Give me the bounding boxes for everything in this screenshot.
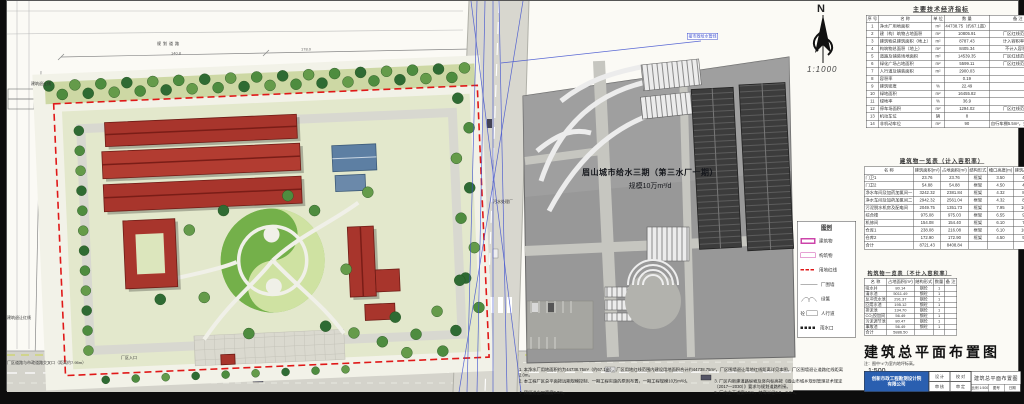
legend-item-label: 雨水口 (820, 325, 834, 332)
table-cell: 机动车位 (878, 113, 932, 121)
table-row: 4构筑物总面积（地上）m²8405.34不计入容积率 (866, 45, 1024, 53)
table-cell: 90 (944, 120, 990, 128)
table-cell: 构筑物总面积（地上） (878, 45, 932, 53)
planned-road-top-label: 规划道路 (157, 41, 181, 47)
table-cell: 3242.32 (914, 189, 941, 197)
table-cell: 厂区红线范围内 (990, 60, 1024, 68)
table-row: 5道路及铺装场地面积m²14539.35厂区红线范围内 (866, 53, 1024, 61)
project-scale: 规模10万m³/d (555, 181, 745, 191)
table-cell: 容积率 (878, 75, 932, 83)
table-cell: 合计 (864, 330, 887, 336)
column-header: 数量 (934, 278, 945, 286)
setback-redline-label: 建筑退让红线 (7, 315, 31, 321)
table-cell: 8 (944, 113, 990, 121)
legend-item: 建筑物 (801, 234, 853, 249)
table-cell: 3 (866, 38, 878, 46)
table-cell: 仓库2 (864, 234, 913, 242)
legend-title: 图例 (801, 224, 853, 232)
table-cell: 54.88 (941, 182, 968, 190)
table-row: 14非机动车位m²90自行车棚5.5m²，共14个车位 (866, 120, 1024, 128)
table-cell: 绿化广场占地面积 (878, 60, 932, 68)
note-1: 1. 本净水厂用地面积约为44738.75m²（约67.1亩），厂区用地红线范围… (519, 367, 849, 378)
table-row: 1净水厂用地面积m²44738.75（约67.1亩） (866, 23, 1024, 31)
column-header: 名 称 (864, 278, 887, 286)
no-cell: 图号 (989, 385, 1005, 392)
table-cell: 框架 (968, 197, 988, 205)
notes-wrap: 1. 本净水厂用地面积约为44738.75m²（约67.1亩），厂区用地红线范围… (519, 367, 849, 396)
table-cell: 10 (866, 90, 878, 98)
table-cell (914, 330, 934, 336)
table-cell: 1351.73 (941, 204, 968, 212)
table-cell: 2049.75 (914, 204, 941, 212)
table-row: 污泥脱水机房及配电间2049.751351.73框架7.9510.101 (864, 204, 1024, 212)
table-cell (988, 242, 1014, 250)
table-cell: 172.90 (914, 234, 941, 242)
table-cell: 机修间 (864, 219, 913, 227)
table-cell: 8.29 (1013, 189, 1024, 197)
note-3: 3. 厂区内新建道路纵坡及竖向标高按《眉山市城乡规划管理技术规定（2017—20… (714, 378, 853, 389)
screenshot-root: { "project_label": { "line1": "眉山城市给水三期（… (0, 0, 1024, 404)
table-row: 2建（构）筑物占地面积m²10805.91厂区红线范围内 (866, 30, 1024, 38)
table-cell: 23.76 (941, 174, 968, 182)
table-cell: 6.10 (988, 227, 1014, 235)
hedge-symbol (801, 295, 818, 302)
structures-table: 名 称占地面积(m²)结构形式数量备 注吸水井80.14钢砼1清水池5011.4… (864, 278, 955, 336)
table-cell: 154.08 (914, 219, 941, 227)
table-row: 8容积率0.19 (866, 75, 1024, 83)
table-cell: 计入容积率部分 (990, 38, 1024, 46)
table-cell: 净水车间及加药加氯间一 (864, 189, 913, 197)
table-row: 机修间154.08154.40框架6.107.761 (864, 219, 1024, 227)
table-cell: 4.50 (988, 234, 1014, 242)
table-row: 合计5886.50 (864, 330, 956, 336)
column-header: 备 注 (945, 278, 957, 286)
project-name: 眉山城市给水三期（第三水厂一期） (555, 167, 745, 178)
drawing-title-note: 注：图中“±”为室内地坪标高。 (864, 361, 917, 367)
legend-item: 构筑物 (801, 248, 853, 263)
table-cell: 154.40 (941, 219, 968, 227)
note-5: 5. 厂内主干道宽4.5m，转弯半径6.0—9.0m。 (714, 390, 853, 396)
rain-inlet-symbol (801, 327, 817, 330)
legend-item-label: 构筑物 (819, 252, 833, 259)
table-cell: 23.76 (914, 174, 941, 182)
company-name: 创新市政工程勘测设计院有限公司 (865, 372, 929, 392)
table-cell: 污泥脱水机房及配电间 (864, 204, 913, 212)
structure-symbol (801, 253, 816, 259)
review-label: 审 核 (929, 382, 950, 392)
table-cell: 6.10 (988, 219, 1014, 227)
table-cell: 238.08 (914, 227, 941, 235)
table-cell: 5 (866, 53, 878, 61)
sewage-plant-label: 污水处理厂 (493, 199, 513, 205)
legend: 图例 建筑物构筑物用地红线厂围墙绿篱砼人行道雨水口 (797, 221, 856, 338)
table-cell: 1 (866, 23, 878, 31)
table-cell: 4.32 (988, 189, 1014, 197)
column-header: 结构形式 (968, 167, 988, 175)
table-cell: 22.49 (944, 83, 990, 91)
table-cell: m² (932, 23, 944, 31)
table-cell: 框架 (968, 234, 988, 242)
titleblock-drawing-name: 建筑总平面布置图 (972, 372, 1021, 385)
north-arrow-icon (814, 15, 832, 63)
table-row: 仓库2172.90172.90框架4.509.461 (864, 234, 1024, 242)
table-cell: 1294.02 (944, 105, 990, 113)
table-cell: 8 (866, 75, 878, 83)
table-cell: 6 (866, 60, 878, 68)
building-symbol (801, 238, 816, 244)
table-cell: 框架 (968, 204, 988, 212)
column-header: 单 位 (932, 15, 944, 23)
table-row: 仓库1238.08216.08框架6.1010.761 (864, 227, 1024, 235)
table-cell: 975.03 (941, 212, 968, 220)
column-header: 序 号 (866, 15, 878, 23)
setback-line-label: 建筑退让线 (31, 81, 51, 87)
table-cell: 建筑物总建筑面积（地上） (878, 38, 932, 46)
column-header: 名 称 (864, 167, 913, 175)
table-cell: 8721.43 (914, 242, 941, 250)
table-cell: 厂区红线范围内 (990, 53, 1024, 61)
table-cell: 8405.34 (944, 45, 990, 53)
scale-cell: 比例 1:500 (972, 385, 989, 392)
table-cell (990, 113, 1024, 121)
table-cell: 3.50 (988, 174, 1014, 182)
table-cell: 自行车棚5.5m²，共14个车位 (990, 120, 1024, 128)
legend-item-label: 厂围墙 (821, 281, 835, 288)
project-label: 眉山城市给水三期（第三水厂一期） 规模10万m³/d (555, 167, 745, 191)
table-cell (945, 330, 957, 336)
table-cell: 绿地面积 (878, 90, 932, 98)
table-row: 门卫123.7623.76框架3.504.951 (864, 174, 1024, 182)
table-cell: 44738.75（约67.1亩） (944, 23, 990, 31)
table-cell: 2900.03 (944, 68, 990, 76)
table-cell: CO₂投加间 (864, 313, 887, 319)
table-cell: % (932, 98, 944, 106)
table-cell: 5599.11 (944, 60, 990, 68)
table-cell: 4.32 (988, 197, 1014, 205)
table-cell: m² (932, 38, 944, 46)
table-cell: m² (932, 105, 944, 113)
table-cell: 停车场面积 (878, 105, 932, 113)
table-cell: 8.29 (1013, 197, 1024, 205)
table-cell (990, 75, 1024, 83)
column-header: 结构形式 (914, 278, 934, 286)
table-cell: 净水车间及加药加氯间二 (864, 197, 913, 205)
pipeline-label: 接市政给水管线 (687, 33, 718, 40)
table-row: 12停车场面积m²1294.02厂区红线范围内 (866, 105, 1024, 113)
buildings-table-wrap: 建筑物一览表（计入容积率） 名 称建筑面积(m²)占地面积(m²)结构形式檐口高… (864, 157, 1020, 250)
table-row: 门卫254.8854.88框架4.504.821 (864, 182, 1024, 190)
table-cell: 非机动车位 (878, 120, 932, 128)
table-cell: 仓库1 (864, 227, 913, 235)
table-cell: 11 (866, 98, 878, 106)
indicators-table-title: 主要技术经济指标 (866, 5, 1016, 14)
date-cell: 日期 (1005, 385, 1021, 392)
legend-item-label: 人行道 (821, 310, 835, 317)
dimension-label-1: 140.8 (171, 51, 181, 56)
table-cell: 7.95 (988, 204, 1014, 212)
table-cell: m² (932, 90, 944, 98)
table-row: 净水车间及加药加氯间一3242.322381.84框架4.328.291 (864, 189, 1024, 197)
table-row: 3建筑物总建筑面积（地上）m²8787.43计入容积率部分 (866, 38, 1024, 46)
pavement-symbol: 砼 (801, 310, 818, 317)
table-cell (990, 68, 1024, 76)
table-cell (990, 83, 1024, 91)
table-cell: 0.19 (944, 75, 990, 83)
site-plan-grey (523, 57, 795, 363)
legend-wrap: 图例 建筑物构筑物用地红线厂围墙绿篱砼人行道雨水口 (797, 221, 856, 338)
table-cell: 9 (866, 83, 878, 91)
table-cell: 6.55 (988, 212, 1014, 220)
table-cell: 人行道及铺装面积 (878, 68, 932, 76)
legend-item: 雨水口 (801, 321, 853, 336)
table-cell: 7 (866, 68, 878, 76)
table-row: 7人行道及铺装面积m²2900.03 (866, 68, 1024, 76)
table-row: 9建筑密度%22.49 (866, 83, 1024, 91)
table-cell: 合计 (864, 242, 913, 250)
table-cell: 框架 (968, 189, 988, 197)
grey-parking (527, 301, 593, 349)
table-cell: 54.88 (914, 182, 941, 190)
table-row: 合计8721.438408.84 (864, 242, 1024, 250)
table-cell: 污泥调节池 (864, 319, 887, 325)
table-cell (934, 330, 945, 336)
table-cell: % (932, 83, 944, 91)
table-cell: 10.10 (1013, 204, 1024, 212)
table-cell: 216.08 (941, 227, 968, 235)
legend-item: 用地红线 (801, 263, 853, 278)
crossing-note-label: 厂区道路与市政道路交叉口（距离约7.95m） (7, 360, 86, 366)
design-label: 设 计 (929, 372, 950, 382)
table-cell: 14539.35 (944, 53, 990, 61)
structures-table-title: 构筑物一览表（不计入容积率） (864, 269, 955, 277)
table-cell: 172.90 (941, 234, 968, 242)
buildings-table: 名 称建筑面积(m²)占地面积(m²)结构形式檐口高度(m)建筑高度(m)数量备… (864, 167, 1020, 250)
table-cell: 14 (866, 120, 878, 128)
dimension-label-2: 178.0 (301, 47, 311, 52)
table-cell: 36.9 (944, 98, 990, 106)
table-cell: 10805.91 (944, 30, 990, 38)
table-cell: 2381.84 (941, 189, 968, 197)
wall-symbol (801, 284, 818, 285)
legend-item: 砼人行道 (801, 306, 853, 321)
table-row: 10绿地面积m²16455.82 (866, 90, 1024, 98)
table-cell (968, 242, 988, 250)
table-cell: 16455.82 (944, 90, 990, 98)
table-cell: 道路及铺装场地面积 (878, 53, 932, 61)
legend-item-label: 用地红线 (819, 267, 837, 274)
column-header: 建筑高度(m) (1013, 167, 1024, 175)
table-cell: 框架 (968, 219, 988, 227)
table-cell: m² (932, 45, 944, 53)
table-cell: 厂区红线范围内 (990, 105, 1024, 113)
table-cell: 975.08 (914, 212, 941, 220)
table-row: 13机动车位辆8 (866, 113, 1024, 121)
table-cell: 绿地率 (878, 98, 932, 106)
table-cell: 不计入容积率 (990, 45, 1024, 53)
check-label: 校 对 (950, 372, 971, 382)
title-block-wrap: 创新市政工程勘测设计院有限公司 设 计 校 对 审 核 审 定 建筑总平面布置图… (864, 371, 1021, 392)
column-header: 占地面积(m²) (941, 167, 968, 175)
table-cell: 4.95 (1013, 174, 1024, 182)
note-2: 2. 本工程厂区总平面按远期规模控制、一期工程实施的原则布置，一期工程规模10万… (519, 378, 710, 389)
column-header: 备 注 (990, 15, 1024, 23)
table-cell: 9.40 (1013, 212, 1024, 220)
signature-grid: 设 计 校 对 审 核 审 定 (929, 372, 972, 392)
table-cell: 2561.04 (941, 197, 968, 205)
table-row: 综合楼975.08975.03框架6.559.401 (864, 212, 1024, 220)
approve-label: 审 定 (950, 382, 971, 392)
legend-item: 绿篱 (801, 292, 853, 307)
table-cell: 4 (866, 45, 878, 53)
note-4: 4. 预留进出口宽度9.0m。 (519, 390, 710, 396)
table-cell: 综合楼 (864, 212, 913, 220)
table-cell: 净水厂用地面积 (878, 23, 932, 31)
structures-table-wrap: 构筑物一览表（不计入容积率） 名 称占地面积(m²)结构形式数量备 注吸水井80… (864, 269, 955, 336)
table-cell: 13 (866, 113, 878, 121)
table-cell: 门卫1 (864, 174, 913, 182)
table-cell: 4.82 (1013, 182, 1024, 190)
table-cell (990, 90, 1024, 98)
table-row: 净水车间及加药加氯间二2942.322561.04框架4.328.291 (864, 197, 1024, 205)
table-cell (990, 23, 1024, 31)
table-cell: m² (932, 30, 944, 38)
table-cell: 门卫2 (864, 182, 913, 190)
table-cell: 框架 (968, 212, 988, 220)
table-cell: 建筑密度 (878, 83, 932, 91)
table-cell: m² (932, 60, 944, 68)
legend-item-label: 建筑物 (819, 238, 833, 245)
legend-item-label: 绿篱 (821, 296, 830, 303)
table-cell: 建（构）筑物占地面积 (878, 30, 932, 38)
table-cell: 4.50 (988, 182, 1014, 190)
table-cell: 2942.32 (914, 197, 941, 205)
column-header: 建筑面积(m²) (914, 167, 941, 175)
indicators-table: 序 号名 称单 位数 量备 注1净水厂用地面积m²44738.75（约67.1亩… (866, 15, 1016, 128)
table-cell (1013, 242, 1024, 250)
table-cell: 辆 (932, 113, 944, 121)
table-cell: 10.76 (1013, 227, 1024, 235)
buildings-table-title: 建筑物一览表（计入容积率） (864, 157, 1020, 165)
site-plan-colored (32, 55, 493, 390)
title-block: 创新市政工程勘测设计院有限公司 设 计 校 对 审 核 审 定 建筑总平面布置图… (864, 371, 1021, 392)
north-letter: N (817, 3, 825, 15)
column-header: 数 量 (944, 15, 990, 23)
column-header: 檐口高度(m) (988, 167, 1014, 175)
table-cell: 7.76 (1013, 219, 1024, 227)
indicators-table-wrap: 主要技术经济指标 序 号名 称单 位数 量备 注1净水厂用地面积m²44738.… (866, 5, 1016, 128)
legend-item: 厂围墙 (801, 277, 853, 292)
table-cell: m² (932, 68, 944, 76)
north-scale: 1:1000 (807, 65, 837, 74)
table-cell: 8787.43 (944, 38, 990, 46)
table-row: 11绿地率%36.9 (866, 98, 1024, 106)
table-cell: 12 (866, 105, 878, 113)
table-cell: 框架 (968, 174, 988, 182)
table-cell: 框架 (968, 227, 988, 235)
drawing-sheet: N 1:1000 主要技术经济指标 序 号名 称单 位数 量备 注1净水厂用地面… (6, 0, 1019, 391)
column-header: 名 称 (878, 15, 932, 23)
table-cell: 5886.50 (887, 330, 914, 336)
table-cell: 厂区红线范围内 (990, 30, 1024, 38)
table-row: 6绿化广场占地面积m²5599.11厂区红线范围内 (866, 60, 1024, 68)
table-cell: 框架 (968, 182, 988, 190)
table-cell: m² (932, 120, 944, 128)
table-cell: 反冲洗水池 (864, 297, 887, 303)
table-cell (932, 75, 944, 83)
entrance-label: 厂区入口 (121, 355, 137, 361)
table-cell (990, 98, 1024, 106)
table-cell: 2 (866, 30, 878, 38)
table-cell: 8408.84 (941, 242, 968, 250)
table-cell: 9.46 (1013, 234, 1024, 242)
column-header: 占地面积(m²) (887, 278, 914, 286)
red-line-symbol (801, 269, 816, 271)
table-cell: m² (932, 53, 944, 61)
